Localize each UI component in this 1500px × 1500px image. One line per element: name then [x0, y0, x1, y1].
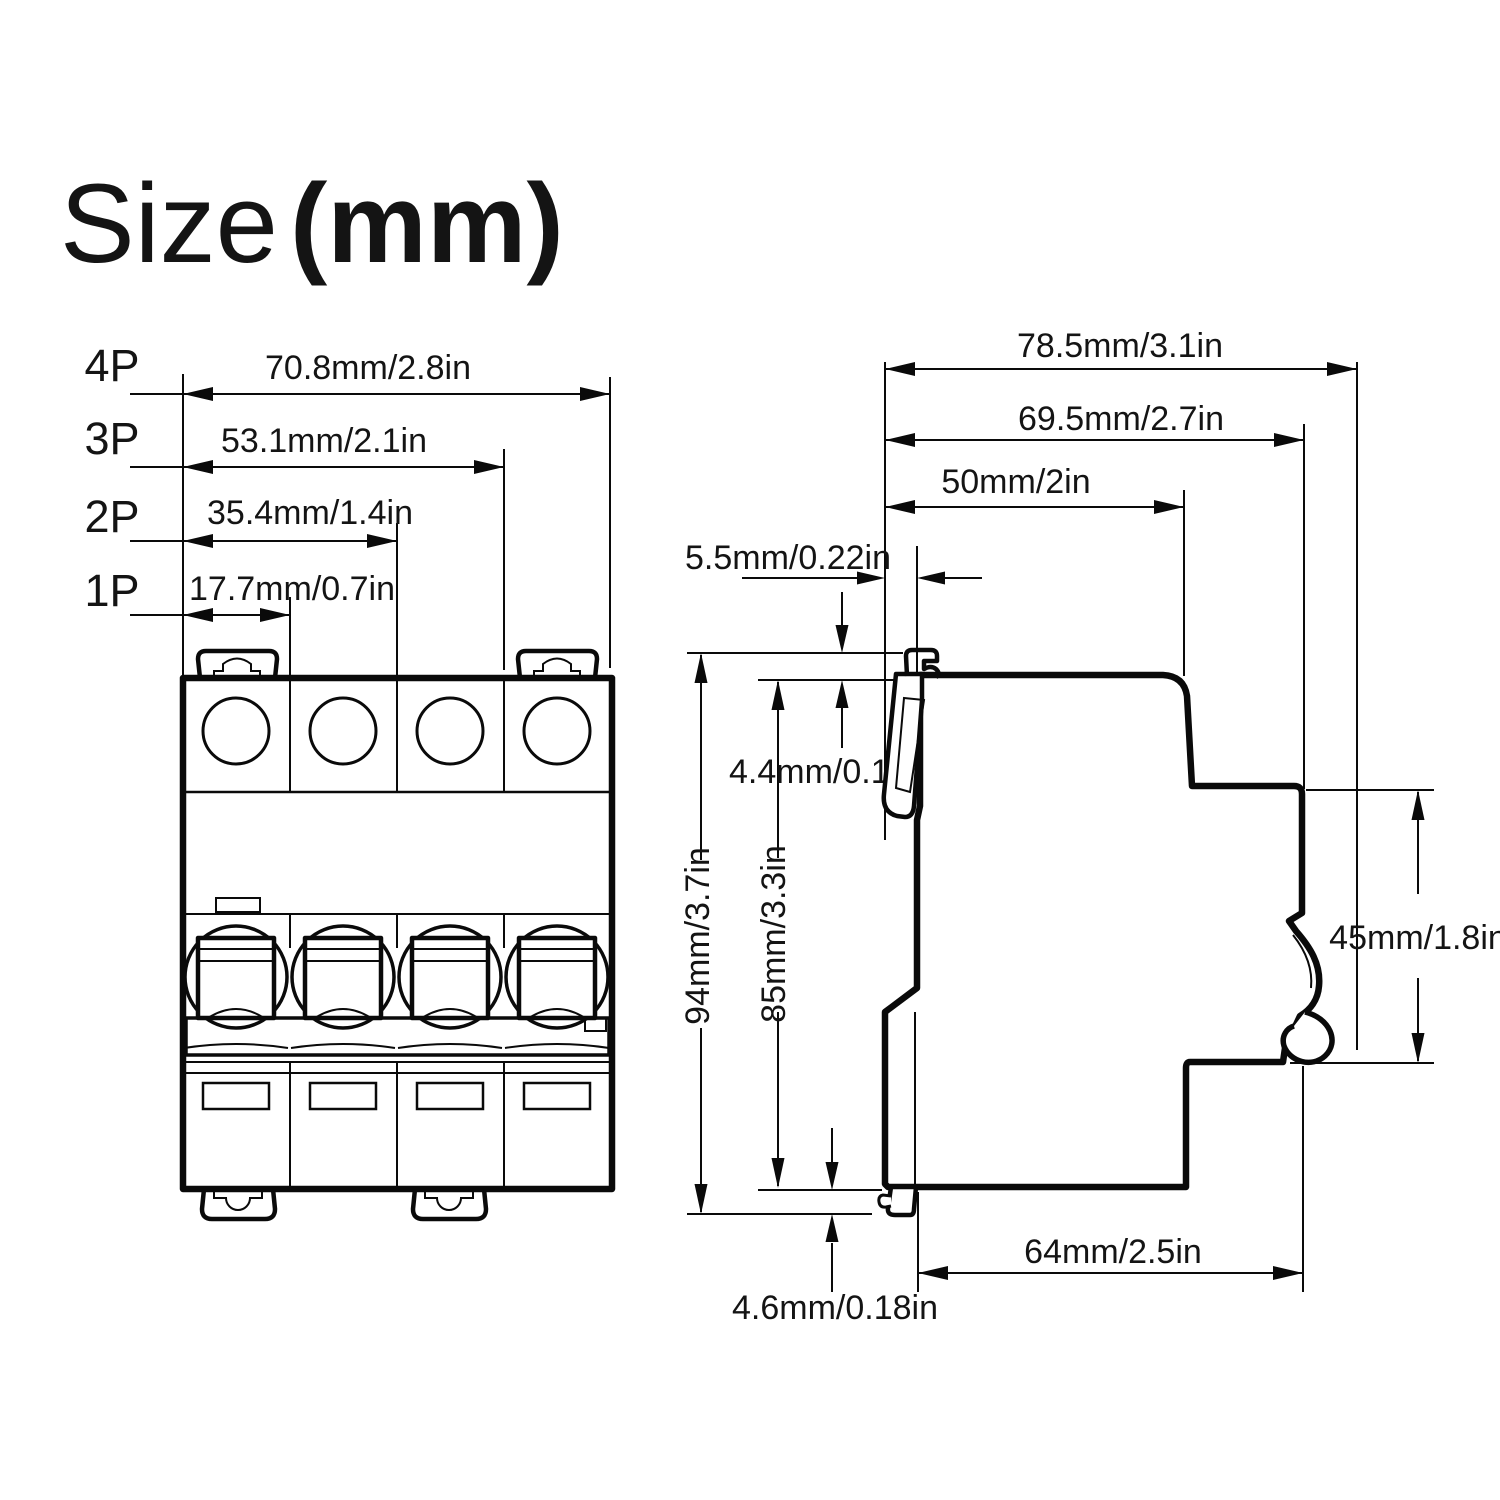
dim-total-height: 94mm/3.7in	[679, 847, 717, 1025]
dim-width-1p: 17.7mm/0.7in	[189, 570, 395, 608]
front-bottom-tab-left	[202, 1189, 275, 1219]
dim-width-2p: 35.4mm/1.4in	[207, 494, 413, 532]
dim-clip-bottom: 4.6mm/0.18in	[732, 1289, 938, 1327]
title-size-text: Size	[60, 161, 278, 286]
dim-body-height: 85mm/3.3in	[755, 845, 793, 1023]
dimension-diagram-page: Size (mm) 4P 3P 2P 1P 70.8mm/2.8in 53.1m…	[0, 0, 1500, 1500]
toggle-handle	[198, 938, 274, 1018]
dim-front-depth: 50mm/2in	[941, 463, 1090, 501]
pole-label-3p: 3P	[84, 413, 139, 464]
pole-label-4p: 4P	[84, 340, 139, 391]
toggle-handle	[412, 938, 488, 1018]
side-bottom-foot-curl	[879, 1195, 891, 1207]
toggle-handle	[305, 938, 381, 1018]
pole-label-1p: 1P	[84, 565, 139, 616]
dim-width-3p: 53.1mm/2.1in	[221, 422, 427, 460]
side-view-drawing	[879, 650, 1332, 1215]
dim-width-4p: 70.8mm/2.8in	[265, 349, 471, 387]
dim-handle-height: 45mm/1.8in	[1329, 919, 1500, 957]
pole-label-2p: 2P	[84, 491, 139, 542]
dim-total-depth: 78.5mm/3.1in	[1017, 327, 1223, 365]
side-bottom-foot	[888, 1187, 916, 1215]
front-top-tab-left	[198, 651, 277, 678]
dim-body-depth: 69.5mm/2.7in	[1018, 400, 1224, 438]
front-view-dimensions: 4P 3P 2P 1P 70.8mm/2.8in 53.1mm/2.1in 35…	[84, 340, 610, 678]
dim-base-depth: 64mm/2.5in	[1024, 1233, 1202, 1271]
front-bottom-tab-mid	[413, 1189, 486, 1219]
front-top-tab-right	[518, 651, 597, 678]
dim-clip-offset: 5.5mm/0.22in	[685, 539, 891, 577]
side-body-outline	[885, 675, 1319, 1187]
toggle-handle	[519, 938, 595, 1018]
diagram-canvas: Size (mm) 4P 3P 2P 1P 70.8mm/2.8in 53.1m…	[0, 0, 1500, 1500]
page-title: Size (mm)	[60, 161, 564, 286]
front-view-drawing	[183, 651, 612, 1219]
title-unit-text: (mm)	[290, 161, 564, 286]
